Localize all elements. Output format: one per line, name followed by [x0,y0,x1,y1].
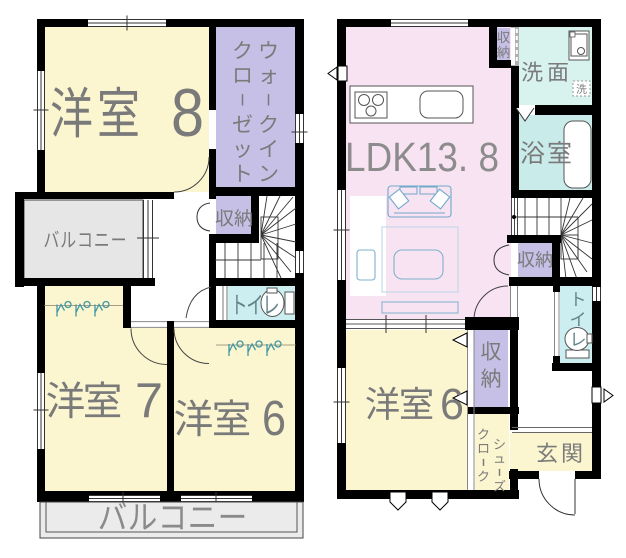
svg-text:6: 6 [262,392,286,446]
svg-text:6: 6 [440,380,464,429]
svg-text:7: 7 [135,374,163,428]
svg-text:8: 8 [171,75,204,151]
svg-text:LDK13. 8: LDK13. 8 [345,134,499,180]
